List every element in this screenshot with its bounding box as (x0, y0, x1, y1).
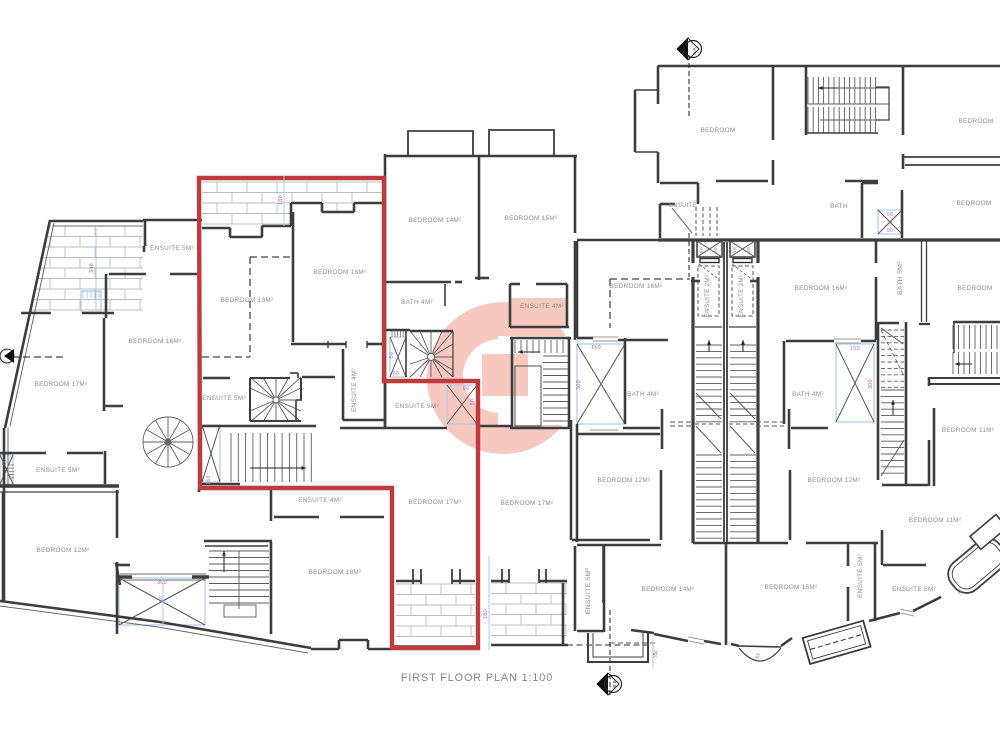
svg-text:60: 60 (159, 596, 165, 602)
svg-text:ENSUITE 5M²: ENSUITE 5M² (857, 554, 864, 598)
svg-text:B.B: B.B (612, 680, 617, 687)
svg-text:300: 300 (868, 379, 874, 389)
svg-text:BEDROOM 17M²: BEDROOM 17M² (501, 500, 554, 507)
svg-text:180: 180 (483, 609, 489, 619)
svg-text:50: 50 (2, 459, 8, 465)
svg-text:BEDROOM 12M²: BEDROOM 12M² (37, 547, 90, 554)
svg-text:BEDROOM 12M²: BEDROOM 12M² (598, 477, 651, 484)
svg-text:FIRST FLOOR PLAN 1:100: FIRST FLOOR PLAN 1:100 (401, 672, 553, 684)
svg-text:ENSUITE 4M²: ENSUITE 4M² (351, 368, 358, 412)
svg-text:180: 180 (278, 195, 284, 205)
svg-text:BEDROOM 12M²: BEDROOM 12M² (808, 477, 861, 484)
svg-text:ENSUITE 2M²: ENSUITE 2M² (704, 275, 711, 318)
svg-text:ENSUITE 5M²: ENSUITE 5M² (892, 586, 936, 593)
svg-text:BATH: BATH (830, 203, 848, 210)
svg-text:BEDROOM 11M²: BEDROOM 11M² (909, 517, 961, 524)
svg-text:50: 50 (470, 399, 476, 405)
svg-text:90: 90 (463, 386, 469, 392)
svg-text:ENSUITE 5M²: ENSUITE 5M² (36, 467, 80, 474)
svg-text:BATH 4M²: BATH 4M² (792, 391, 824, 398)
svg-text:BEDROOM: BEDROOM (956, 200, 991, 207)
svg-text:ENSUITE: ENSUITE (669, 203, 697, 209)
svg-text:90: 90 (713, 247, 719, 253)
svg-text:A.A: A.A (692, 47, 697, 54)
svg-text:BEDROOM 13M²: BEDROOM 13M² (221, 297, 274, 304)
svg-text:BEDROOM 18M²: BEDROOM 18M² (309, 569, 362, 576)
svg-text:BEDROOM 17M²: BEDROOM 17M² (35, 381, 88, 388)
svg-text:90: 90 (732, 247, 738, 253)
svg-text:ENSUITE 5M²: ENSUITE 5M² (150, 245, 194, 252)
svg-text:BEDROOM: BEDROOM (700, 127, 735, 134)
svg-text:348: 348 (89, 263, 95, 273)
svg-text:90: 90 (887, 228, 893, 234)
svg-text:90: 90 (887, 212, 893, 218)
svg-text:ENSUITE 4M²: ENSUITE 4M² (298, 497, 342, 504)
svg-text:150: 150 (591, 345, 601, 351)
svg-text:BEDROOM: BEDROOM (958, 118, 993, 125)
svg-text:BEDROOM 17M²: BEDROOM 17M² (409, 499, 462, 506)
svg-text:BEDROOM 14M²: BEDROOM 14M² (642, 586, 695, 593)
svg-text:BEDROOM: BEDROOM (957, 285, 992, 292)
svg-text:150: 150 (850, 346, 860, 352)
svg-text:BEDROOM 15M²: BEDROOM 15M² (765, 584, 818, 591)
svg-text:ENSUITE 5M²: ENSUITE 5M² (585, 567, 592, 614)
svg-text:BEDROOM 16M²: BEDROOM 16M² (795, 285, 848, 292)
svg-text:BATH 4M²: BATH 4M² (627, 391, 659, 398)
svg-text:BEDROOM 15M²: BEDROOM 15M² (505, 215, 558, 222)
svg-text:50: 50 (389, 352, 395, 358)
svg-text:ENSUITE 5M²: ENSUITE 5M² (395, 403, 439, 410)
svg-text:160: 160 (206, 475, 212, 485)
svg-text:BEDROOM 11M²: BEDROOM 11M² (942, 427, 994, 434)
svg-text:90: 90 (746, 247, 752, 253)
svg-text:BEDROOM 14M²: BEDROOM 14M² (409, 217, 462, 224)
svg-text:60: 60 (393, 371, 399, 377)
svg-text:BATH 4M²: BATH 4M² (401, 299, 433, 306)
svg-text:BEDROOM 16M²: BEDROOM 16M² (129, 338, 182, 345)
svg-text:BEDROOM 16M²: BEDROOM 16M² (314, 269, 367, 276)
svg-text:ENSUITE 5M²: ENSUITE 5M² (202, 395, 246, 402)
svg-text:BATH 5M²: BATH 5M² (897, 261, 904, 295)
svg-text:BEDROOM 16M²: BEDROOM 16M² (610, 283, 663, 290)
svg-text:300: 300 (576, 380, 582, 390)
svg-text:90: 90 (699, 247, 705, 253)
svg-text:ENSUITE 2M²: ENSUITE 2M² (738, 275, 745, 318)
svg-text:300: 300 (157, 580, 167, 586)
svg-text:ENSUITE 4M²: ENSUITE 4M² (520, 303, 564, 310)
